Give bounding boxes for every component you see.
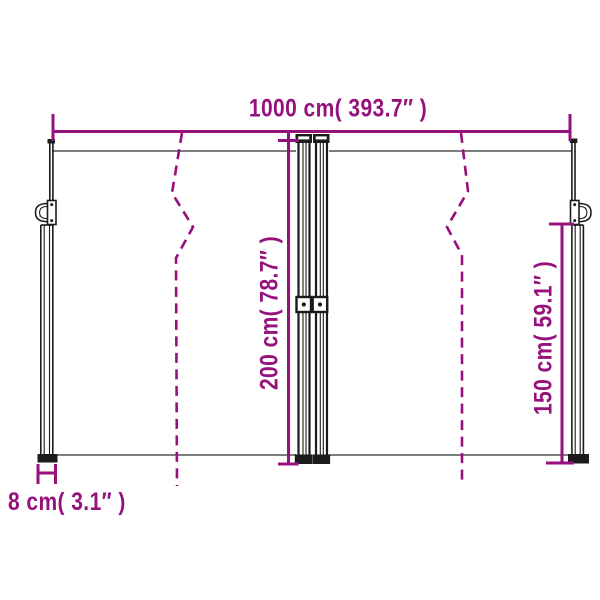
right-post [568, 139, 589, 464]
left-fold-dashed-line [172, 133, 193, 486]
dimension-label-total-width: 1000 cm( 393.7″ ) [249, 97, 427, 122]
dimension-label-post-depth: 8 cm( 3.1″ ) [8, 490, 126, 515]
center-clamp-right [313, 297, 328, 312]
awning-dimension-diagram: 1000 cm( 393.7″ ) 200 cm( 78.7″ ) 150 cm… [0, 0, 600, 600]
right-fold-dashed-line [447, 133, 468, 486]
center-posts [295, 134, 330, 464]
dimension-label-right-height: 150 cm( 59.1″ ) [532, 261, 557, 415]
dimension-label-height: 200 cm( 78.7″ ) [258, 236, 283, 390]
left-post [38, 139, 58, 463]
dimension-bracket-post-depth [38, 464, 56, 484]
left-post-handle [36, 201, 57, 225]
center-clamp-left [297, 297, 312, 312]
right-post-handle [571, 201, 592, 225]
